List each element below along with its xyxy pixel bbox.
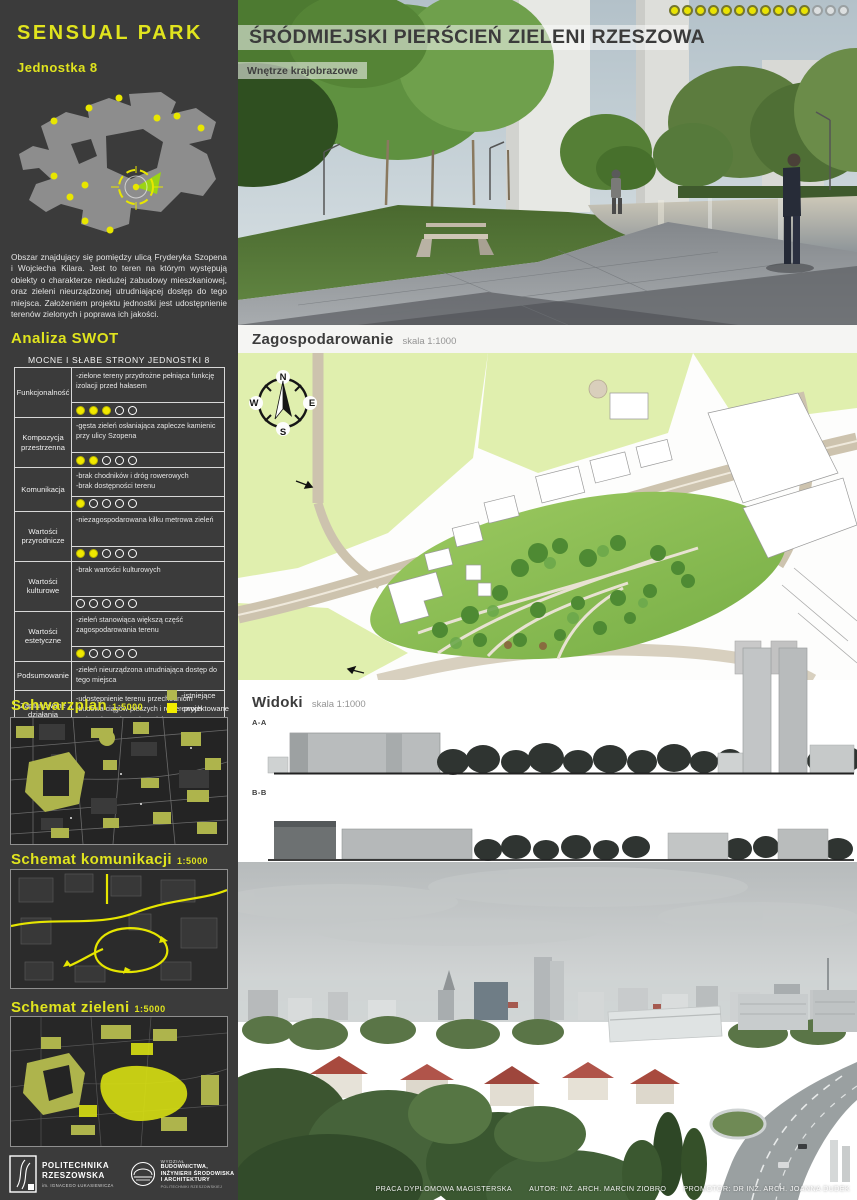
master-plan-graphic: N E S W [238, 353, 857, 680]
thesis-type: PRACA DYPLOMOWA MAGISTERSKA [375, 1184, 512, 1193]
swot-row: Kompozycja przestrzenna-gęsta zieleń osł… [15, 418, 224, 468]
rating-dot-filled [102, 406, 111, 415]
swot-rating [72, 496, 224, 511]
road [711, 1062, 857, 1200]
swot-text: -gęsta zieleń osłaniająca zaplecze kamie… [72, 418, 224, 452]
swot-category: Funkcjonalność [15, 368, 72, 417]
rating-dot-empty [115, 499, 124, 508]
rating-dot-filled [76, 499, 85, 508]
progress-dot-filled [734, 5, 745, 16]
schwarzplan-heading: Schwarzplan1:5000 [11, 697, 143, 714]
swot-rating [72, 402, 224, 417]
swot-table-title: MOCNE I SŁABE STRONY JEDNOSTKI 8 [0, 355, 238, 365]
swot-text: -zieleń stanowiąca większą część zagospo… [72, 612, 224, 646]
schwarzplan-scale: 1:5000 [112, 702, 143, 712]
progress-dot-empty [838, 5, 849, 16]
rating-dot-empty [102, 549, 111, 558]
progress-dot-filled [760, 5, 771, 16]
rating-dot-empty [102, 456, 111, 465]
greenery-label: Schemat zieleni [11, 999, 130, 1016]
compass-n: N [280, 372, 287, 383]
plan-heading: Zagospodarowanie [252, 331, 393, 348]
unit-subtitle: Jednostka 8 [17, 60, 98, 75]
progress-dot-filled [682, 5, 693, 16]
swot-row: Komunikacja-brak chodników i dróg rowero… [15, 468, 224, 512]
section-b-drawing [238, 799, 857, 862]
apartment-blocks [738, 990, 857, 1032]
progress-dot-empty [825, 5, 836, 16]
swot-heading: Analiza SWOT [11, 330, 119, 347]
swot-body: -gęsta zieleń osłaniająca zaplecze kamie… [72, 418, 224, 467]
university-name-1: POLITECHNIKA [42, 1161, 114, 1171]
rating-dot-empty [128, 599, 137, 608]
greenery-heading: Schemat zieleni1:5000 [11, 999, 166, 1016]
title-bar: ŚRÓDMIEJSKI PIERŚCIEŃ ZIELENI RZESZOWA [238, 25, 688, 50]
swot-body: -zielone tereny przydrożne pełniąca funk… [72, 368, 224, 417]
swot-category: Podsumowanie [15, 662, 72, 690]
university-subtext: im. IGNACEGO ŁUKASIEWICZA [42, 1183, 114, 1188]
main-column: ŚRÓDMIEJSKI PIERŚCIEŃ ZIELENI RZESZOWA W… [238, 0, 857, 1200]
swot-text: -brak wartości kulturowych [72, 562, 224, 596]
swot-row: Wartości estetyczne-zieleń stanowiąca wi… [15, 612, 224, 662]
communication-graphic [11, 870, 227, 988]
rating-dot-filled [89, 549, 98, 558]
hero-render: ŚRÓDMIEJSKI PIERŚCIEŃ ZIELENI RZESZOWA W… [238, 0, 857, 325]
rating-dot-filled [76, 456, 85, 465]
swot-table: Funkcjonalność-zielone tereny przydrożne… [14, 367, 225, 741]
faculty-logo: WYDZIAŁ BUDOWNICTWA, INŻYNIERII ŚRODOWIS… [130, 1159, 235, 1189]
university-name-2: RZESZOWSKA [42, 1171, 114, 1181]
swot-row: Funkcjonalność-zielone tereny przydrożne… [15, 368, 224, 418]
section-tower-1 [743, 648, 771, 773]
progress-dot-filled [721, 5, 732, 16]
rating-dot-empty [115, 649, 124, 658]
aerial-photo: PRACA DYPLOMOWA MAGISTERSKA AUTOR: INŻ. … [238, 862, 857, 1200]
rating-dot-filled [76, 549, 85, 558]
compass-s: S [280, 427, 286, 438]
progress-dot-filled [799, 5, 810, 16]
compass-w: W [250, 398, 259, 409]
legend-existing-label: -istniejące [181, 691, 215, 700]
faculty-logo-icon [130, 1161, 156, 1187]
swot-text: -zieleń nieurządzona utrudniająca dostęp… [72, 662, 224, 690]
communication-heading: Schemat komunikacji1:5000 [11, 851, 208, 868]
rating-dot-empty [128, 499, 137, 508]
swot-body: -zieleń nieurządzona utrudniająca dostęp… [72, 662, 224, 690]
swot-body: -niezagospodarowana kilku metrowa zieleń [72, 512, 224, 561]
rating-dot-empty [115, 456, 124, 465]
promoter-credit: PROMOTOR: DR INŻ. ARCH. JOANNA DUDEK [683, 1184, 850, 1193]
communication-map [10, 869, 228, 989]
section-tower-2 [779, 648, 807, 773]
master-plan: N E S W [238, 353, 857, 680]
swot-category: Kompozycja przestrzenna [15, 418, 72, 467]
rating-dot-filled [76, 406, 85, 415]
progress-dot-filled [708, 5, 719, 16]
legend-existing: -istniejące [167, 690, 229, 700]
rating-dot-empty [89, 599, 98, 608]
poster-board: SENSUAL PARK Jednostka 8 [0, 0, 857, 1200]
rating-dot-empty [115, 549, 124, 558]
faculty-logo-text: WYDZIAŁ BUDOWNICTWA, INŻYNIERII ŚRODOWIS… [161, 1159, 235, 1189]
footer-credits: PRACA DYPLOMOWA MAGISTERSKA AUTOR: INŻ. … [258, 1184, 850, 1193]
legend-planned: -projektowane [167, 703, 229, 713]
rating-dot-empty [89, 499, 98, 508]
poster-title: ŚRÓDMIEJSKI PIERŚCIEŃ ZIELENI RZESZOWA [249, 26, 705, 49]
rating-dot-empty [76, 599, 85, 608]
progress-dot-filled [669, 5, 680, 16]
progress-dot-filled [747, 5, 758, 16]
swot-category: Wartości estetyczne [15, 612, 72, 661]
rating-dot-empty [128, 456, 137, 465]
rating-dot-empty [128, 549, 137, 558]
progress-dot-filled [786, 5, 797, 16]
project-title: SENSUAL PARK [17, 22, 203, 45]
swot-text: -niezagospodarowana kilku metrowa zieleń [72, 512, 224, 546]
swot-body: -zieleń stanowiąca większą część zagospo… [72, 612, 224, 661]
compass-e: E [309, 398, 315, 409]
swot-rating [72, 646, 224, 661]
swot-row: Wartości przyrodnicze-niezagospodarowana… [15, 512, 224, 562]
city-panorama-graphic [238, 862, 857, 1200]
sidebar: SENSUAL PARK Jednostka 8 [0, 0, 238, 1200]
poster-subtitle: Wnętrze krajobrazowe [238, 62, 367, 79]
swot-rating [72, 452, 224, 467]
green-ring-diagram [11, 84, 227, 246]
greenery-scale: 1:5000 [135, 1004, 166, 1014]
rating-dot-filled [89, 406, 98, 415]
rating-dot-filled [76, 649, 85, 658]
progress-dot-filled [773, 5, 784, 16]
swot-rating [72, 596, 224, 611]
swot-rating [72, 546, 224, 561]
university-logo-icon [9, 1155, 37, 1193]
rating-dot-empty [115, 599, 124, 608]
swot-body: -brak wartości kulturowych [72, 562, 224, 611]
map-legend: -istniejące -projektowane [167, 690, 229, 713]
rating-dot-empty [102, 499, 111, 508]
university-logo-text: POLITECHNIKA RZESZOWSKA im. IGNACEGO ŁUK… [42, 1161, 114, 1188]
rating-dot-filled [89, 456, 98, 465]
concert-hall [608, 1006, 722, 1042]
rating-dot-empty [89, 649, 98, 658]
rating-dot-empty [128, 649, 137, 658]
swot-category: Wartości przyrodnicze [15, 512, 72, 561]
progress-dot-empty [812, 5, 823, 16]
progress-dot-filled [695, 5, 706, 16]
swot-row: Podsumowanie-zieleń nieurządzona utrudni… [15, 662, 224, 691]
communication-label: Schemat komunikacji [11, 851, 172, 868]
communication-scale: 1:5000 [177, 856, 208, 866]
section-a-drawing [238, 645, 857, 775]
legend-existing-swatch [167, 690, 177, 700]
greenery-map [10, 1016, 228, 1147]
faculty-line-3: I ARCHITEKTURY [161, 1177, 235, 1183]
rating-dot-empty [102, 599, 111, 608]
swot-body: -brak chodników i dróg rowerowych-brak d… [72, 468, 224, 511]
plan-scale: skala 1:1000 [402, 336, 456, 347]
schwarzplan-label: Schwarzplan [11, 697, 107, 714]
progress-dots [669, 5, 849, 16]
swot-category: Komunikacja [15, 468, 72, 511]
schwarzplan-graphic [11, 718, 227, 844]
legend-planned-label: -projektowane [181, 704, 229, 713]
greenery-graphic [11, 1017, 227, 1146]
section-b-label: B-B [252, 788, 267, 797]
legend-planned-swatch [167, 703, 177, 713]
site-location-diagram [11, 84, 227, 246]
site-description: Obszar znajdujący się pomiędzy ulicą Fry… [11, 252, 227, 321]
faculty-subtext: POLITECHNIKI RZESZOWSKIEJ [161, 1185, 235, 1189]
swot-row: Wartości kulturowe-brak wartości kulturo… [15, 562, 224, 612]
author-credit: AUTOR: INŻ. ARCH. MARCIN ZIOBRO [529, 1184, 666, 1193]
rating-dot-empty [102, 649, 111, 658]
schwarzplan-map [10, 717, 228, 845]
plan-header: Zagospodarowanie skala 1:1000 [238, 325, 857, 353]
institution-logos: POLITECHNIKA RZESZOWSKA im. IGNACEGO ŁUK… [9, 1155, 235, 1193]
swot-text: -brak chodników i dróg rowerowych-brak d… [72, 468, 224, 496]
swot-text: -zielone tereny przydrożne pełniąca funk… [72, 368, 224, 402]
swot-category: Wartości kulturowe [15, 562, 72, 611]
rating-dot-empty [128, 406, 137, 415]
rating-dot-empty [115, 406, 124, 415]
